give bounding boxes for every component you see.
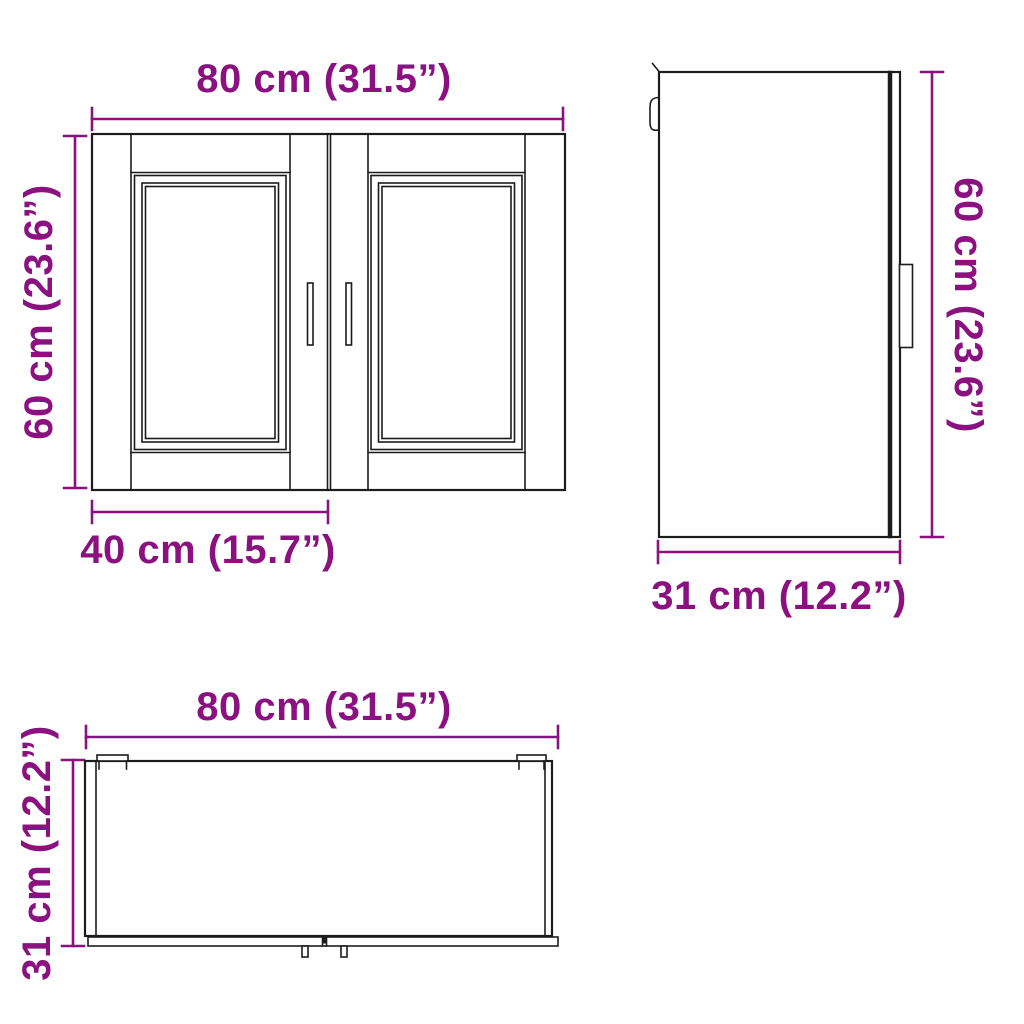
left-door-panel-mid-frame [142,183,279,442]
front-height-label: 60 cm (23.6”) [17,184,61,440]
side-depth-label: 31 cm (12.2”) [651,574,907,618]
top-depth-label: 31 cm (12.2”) [15,725,59,981]
front-width-label: 80 cm (31.5”) [196,57,452,101]
right-door-panel-mid-frame [379,183,515,442]
front-width-dimension: 80 cm (31.5”) [92,57,563,130]
right-door-handle [346,283,352,345]
cabinet-top-outline [85,761,552,936]
left-hanging-bracket [97,755,128,761]
side-height-label: 60 cm (23.6”) [946,177,990,433]
right-hanging-bracket [517,755,546,761]
top-width-dimension: 80 cm (31.5”) [86,685,558,748]
front-view: 80 cm (31.5”) 60 cm (23.6”) [17,57,565,572]
product-dimension-diagram: 80 cm (31.5”) 60 cm (23.6”) [0,0,1024,1024]
right-door-panel-inner-frame [382,187,511,439]
left-door-handle [308,283,314,345]
cabinet-front-outline [92,134,565,490]
top-width-label: 80 cm (31.5”) [196,685,452,729]
door-width-label: 40 cm (15.7”) [80,528,336,572]
top-depth-dimension: 31 cm (12.2”) [15,725,84,981]
side-depth-dimension: 31 cm (12.2”) [651,541,907,618]
top-view: 80 cm (31.5”) 31 cm (12.2”) [15,685,558,981]
left-door-panel-outer-frame [135,176,287,450]
door-width-dimension: 40 cm (15.7”) [80,501,336,572]
side-height-dimension: 60 cm (23.6”) [921,72,990,537]
side-top-corner-notch [653,64,660,72]
top-left-door-handle [302,946,308,957]
side-view: 60 cm (23.6”) 31 cm (12.2”) [650,64,990,619]
side-handle [900,265,913,348]
side-hinge-bracket [650,98,659,131]
cabinet-side-outline [659,72,900,537]
front-height-dimension: 60 cm (23.6”) [17,136,86,488]
top-right-door-handle [341,946,347,957]
top-door-gap-seam [323,938,327,944]
diagram-canvas: 80 cm (31.5”) 60 cm (23.6”) [0,0,1024,1024]
right-door-panel-outer-frame [371,176,522,450]
left-door-panel-inner-frame [146,187,276,439]
